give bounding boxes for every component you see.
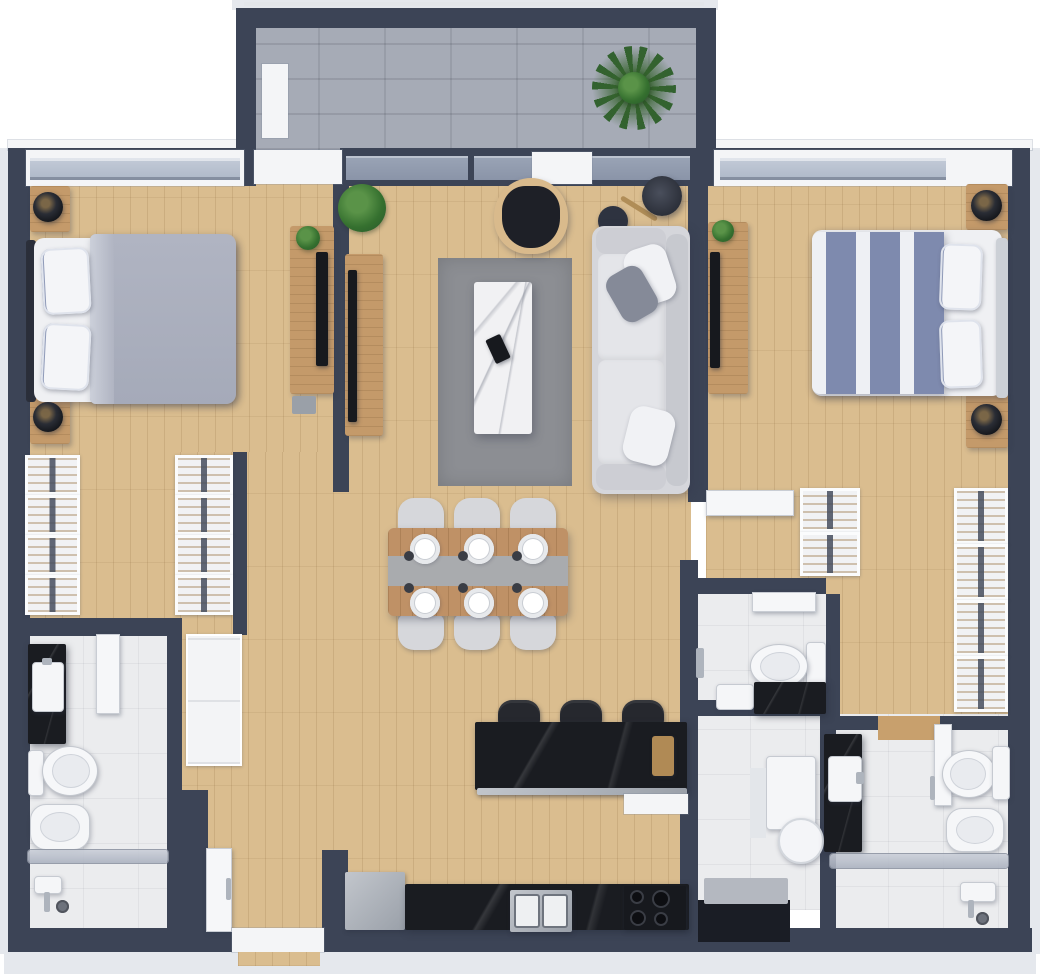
table-lamp [971, 404, 1002, 435]
cup [512, 551, 522, 561]
cup [512, 583, 522, 593]
water-heater [778, 818, 824, 864]
entry-threshold [232, 928, 324, 952]
balcony-wall-top [236, 8, 716, 28]
cup [404, 583, 414, 593]
plate [518, 534, 548, 564]
bed-duvet-fold [90, 234, 114, 404]
sofa-arm [596, 464, 666, 490]
wall-closet-right [233, 452, 247, 635]
wardrobe-unit [175, 535, 233, 575]
cup [458, 551, 468, 561]
sink-bowl [542, 894, 568, 928]
sill-under-balcony-left [254, 150, 342, 184]
plate [464, 534, 494, 564]
wardrobe-unit [25, 495, 80, 535]
hall-closet [186, 634, 242, 766]
entry-doormat [238, 952, 320, 966]
right-bedroom-door-leaf [706, 490, 794, 516]
dresser-plant [296, 226, 320, 250]
wardrobe-unit [175, 455, 233, 495]
bidet-inner [956, 816, 994, 844]
wardrobe-unit [25, 575, 80, 615]
bathroom-sink [716, 684, 754, 710]
island-side-cabinet [624, 794, 688, 814]
toilet-inner [52, 754, 90, 788]
toilet-tank [992, 746, 1010, 800]
shower-drain [56, 900, 69, 913]
burner [630, 910, 646, 926]
shower-head [960, 882, 996, 902]
dresser-speaker [292, 396, 316, 414]
right-bathroom-door-handle [930, 776, 935, 800]
wardrobe-unit [954, 544, 1008, 600]
wall-leftbath-right [167, 636, 182, 932]
table-lamp [33, 402, 63, 432]
wardrobe-unit [800, 488, 860, 532]
vanity-faucet [42, 658, 52, 665]
wall-leftbath-top [8, 618, 182, 636]
exterior-trim-bottom [4, 950, 1036, 974]
fridge [345, 872, 405, 930]
wall-right [1008, 148, 1030, 952]
balcony-ac-unit [262, 64, 288, 138]
wardrobe-unit [25, 455, 80, 495]
wall-divider-living-rightbed [688, 148, 708, 502]
living-window-glass [346, 156, 690, 180]
sink-bowl [514, 894, 540, 928]
wardrobe-unit [25, 535, 80, 575]
vanity-faucet [856, 772, 864, 784]
right-bathroom-threshold [878, 716, 940, 740]
left-bedroom-window-glass [30, 158, 240, 180]
bed-headboard-right [996, 238, 1008, 398]
exterior-trim-right [1030, 148, 1040, 954]
burner [654, 912, 668, 926]
shower-glass-panel [28, 850, 168, 863]
armchair-seat [502, 186, 560, 248]
burner [630, 890, 644, 904]
bed-duvet-striped [812, 232, 944, 394]
shower-hose [968, 900, 974, 918]
wardrobe-unit [954, 600, 1008, 656]
dresser-plant [712, 220, 734, 242]
plate [518, 588, 548, 618]
left-bathroom-door-leaf [96, 634, 120, 714]
washer-panel [750, 768, 766, 838]
dresser-tv [316, 252, 328, 366]
bidet-inner [40, 812, 80, 842]
shower-floor-marble [754, 682, 826, 714]
wall-midbath-right [826, 594, 840, 716]
balcony-wall-right [696, 8, 716, 152]
table-lamp [971, 190, 1002, 221]
wardrobe-unit [954, 656, 1008, 712]
right-bedroom-window-glass [720, 158, 946, 180]
cup [458, 583, 468, 593]
plate [410, 588, 440, 618]
plate [464, 588, 494, 618]
vanity-sink [32, 662, 64, 712]
cup [404, 551, 414, 561]
bed-pillow [939, 319, 983, 388]
shower-drain [976, 912, 989, 925]
toilet-inner [760, 652, 800, 681]
laundry-mat [704, 878, 788, 904]
bed-pillow [40, 323, 91, 391]
balcony-palm-core [618, 72, 650, 104]
wall-entry-left [182, 790, 208, 932]
bed-pillow [40, 247, 91, 315]
wardrobe-unit [175, 495, 233, 535]
wardrobe-unit [175, 575, 233, 615]
plate [410, 534, 440, 564]
wardrobe-unit [954, 488, 1008, 544]
living-tv [348, 270, 357, 422]
floor-lamp-shade [642, 176, 682, 216]
entry-door-handle [226, 878, 231, 900]
table-lamp [33, 192, 63, 222]
cutting-board [652, 736, 674, 776]
balcony-wall-left [236, 8, 256, 152]
burner [652, 890, 670, 908]
balcony-rail [244, 2, 704, 6]
toilet-inner [950, 758, 986, 790]
shower-hose [44, 892, 50, 912]
floor-plan [0, 0, 1040, 975]
wardrobe-unit [800, 532, 860, 576]
shower-mixer [696, 648, 704, 678]
laundry-doorway [698, 900, 790, 942]
dresser-tv [710, 252, 720, 368]
bed-pillow [939, 243, 983, 310]
shower-glass-panel [830, 854, 1008, 868]
living-window-mullion [468, 154, 474, 182]
middle-bathroom-door-leaf [752, 592, 816, 612]
living-plant [338, 184, 386, 232]
